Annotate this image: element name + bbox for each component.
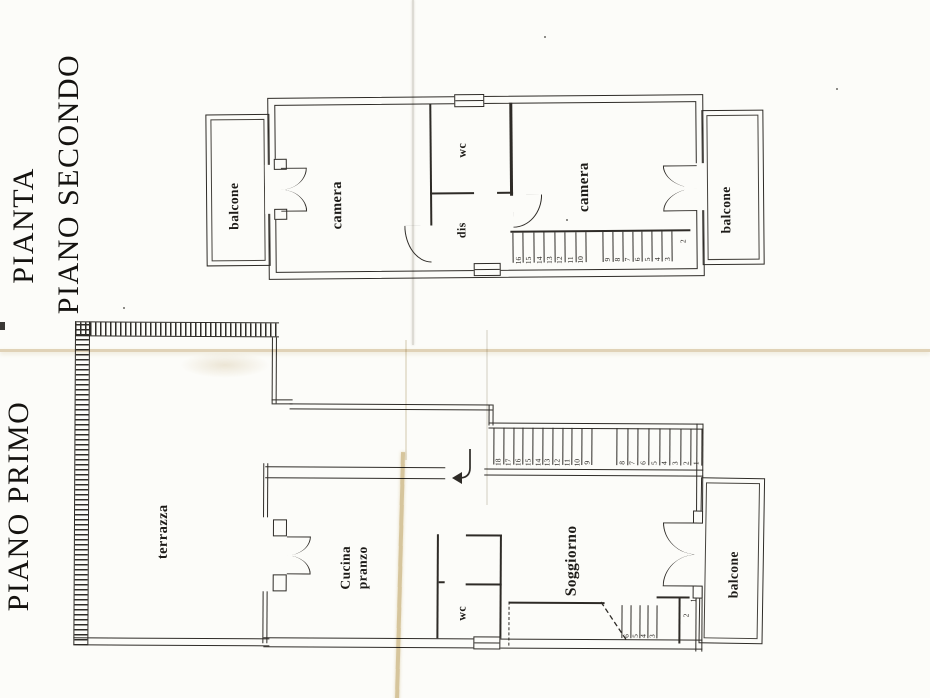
scan-speck	[123, 307, 125, 309]
scan-speck	[836, 88, 838, 90]
section-cut-line	[601, 602, 627, 641]
scan-edge-mark	[0, 322, 5, 330]
scan-speck	[544, 36, 546, 38]
scan-speck	[566, 219, 568, 221]
plan-annotations	[0, 0, 930, 698]
stair-direction-arrow	[452, 449, 470, 484]
scanned-floor-plan-page: PIANTA PIANO SECONDO PIANO PRIMO	[0, 0, 930, 698]
